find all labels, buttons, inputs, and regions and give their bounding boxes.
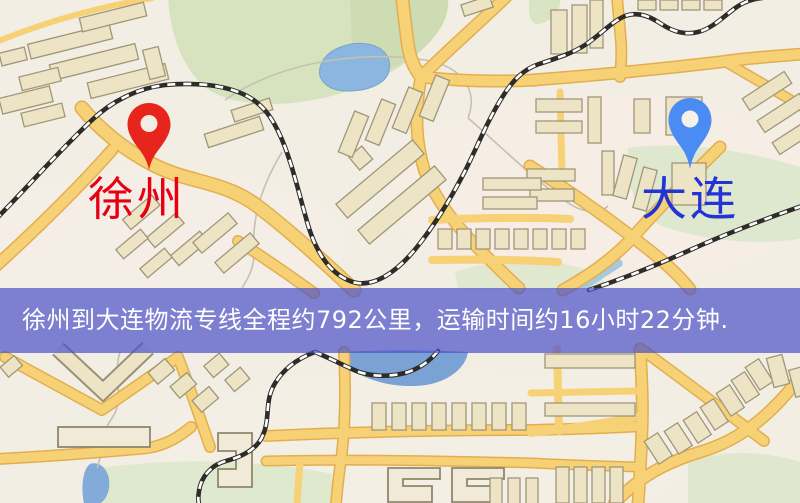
destination-label: 大连 xyxy=(641,176,739,222)
origin-pin-icon[interactable] xyxy=(126,102,172,174)
map-view: 徐州 大连 徐州到大连物流专线全程约792公里，运输时间约16小时22分钟. xyxy=(0,0,800,503)
route-summary-text: 徐州到大连物流专线全程约792公里，运输时间约16小时22分钟. xyxy=(22,306,729,334)
destination-pin-icon[interactable] xyxy=(667,97,713,173)
map-canvas xyxy=(0,0,800,503)
origin-label: 徐州 xyxy=(88,176,186,222)
route-summary-banner: 徐州到大连物流专线全程约792公里，运输时间约16小时22分钟. xyxy=(0,288,800,353)
